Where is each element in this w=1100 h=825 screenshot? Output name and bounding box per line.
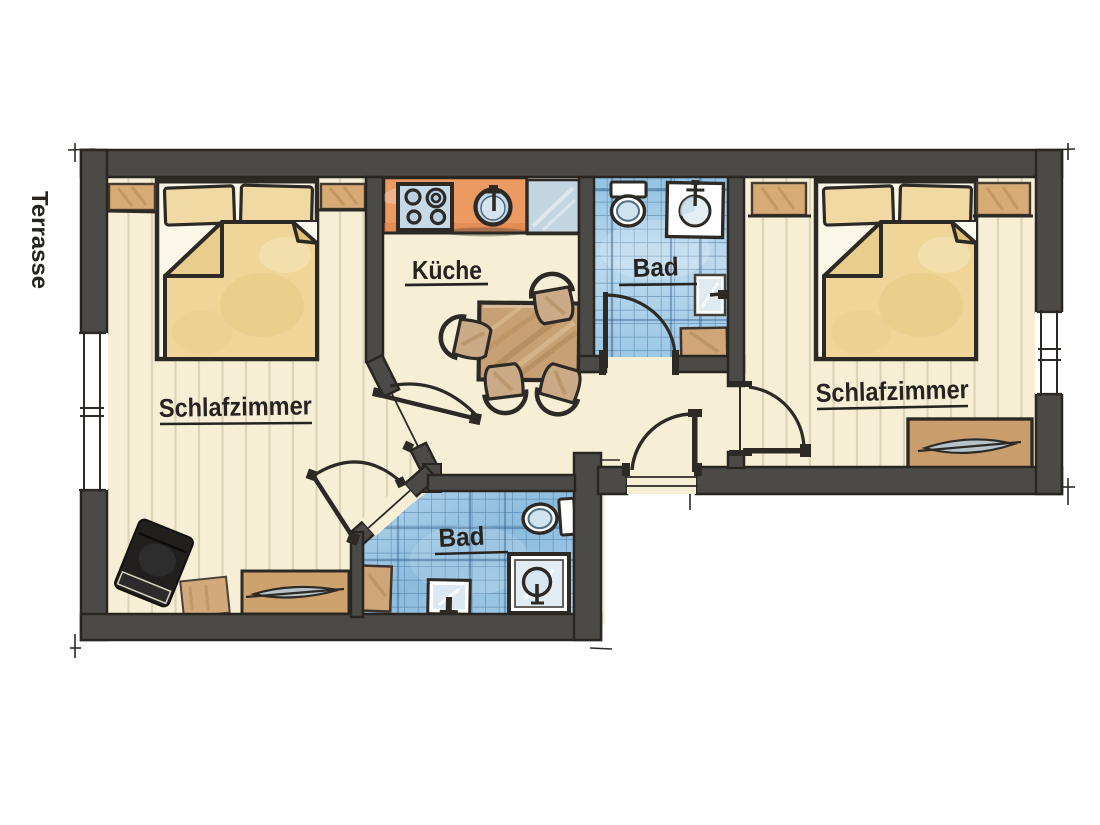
svg-text:Schlafzimmer: Schlafzimmer xyxy=(159,390,313,423)
svg-text:Terrasse: Terrasse xyxy=(27,191,53,289)
svg-text:Bad: Bad xyxy=(632,251,679,283)
svg-text:Bad: Bad xyxy=(438,521,486,553)
svg-text:Küche: Küche xyxy=(412,255,482,285)
svg-text:Schlafzimmer: Schlafzimmer xyxy=(815,374,969,408)
